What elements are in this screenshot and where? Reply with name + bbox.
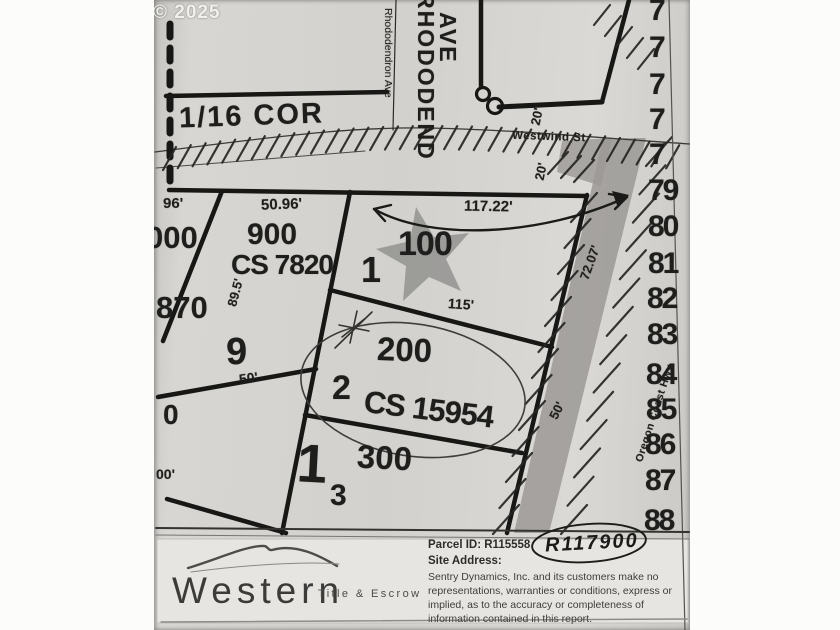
right-number: 7	[649, 105, 664, 135]
right-number: 88	[644, 506, 673, 536]
right-number: 7	[649, 0, 664, 26]
site-address-label: Site Address:	[428, 556, 502, 568]
street-rhododendron-ave-big-2: AVE	[436, 12, 459, 64]
dim-96: 96'	[163, 196, 183, 211]
street-rhododendron-ave-small: Rhododendron Ave	[383, 8, 394, 98]
right-number: 85	[646, 395, 675, 425]
right-number: 7	[649, 33, 664, 63]
right-number: 80	[648, 212, 677, 242]
parcel-0: 0	[163, 401, 179, 429]
corner-label: 1/16 COR	[179, 99, 325, 133]
copyright-watermark: © 2025	[154, 3, 221, 22]
western-title-logo-sub: Title & Escrow	[318, 589, 421, 600]
dim-00: 00'	[156, 467, 175, 481]
right-number: 83	[647, 320, 676, 350]
right-number: 82	[647, 284, 676, 314]
parcel-900-cs: CS 7820	[231, 251, 333, 279]
right-number: 87	[645, 466, 674, 496]
right-number: 79	[648, 176, 677, 206]
street-rhododendron-ave-big: RHODODEND	[414, 0, 437, 161]
scanned-plat-map: © 2025 1/16 COR Rhododendron Ave RHODODE…	[154, 0, 690, 630]
scan-inner: © 2025 1/16 COR Rhododendron Ave RHODODE…	[154, 0, 690, 630]
right-number: 81	[648, 249, 677, 279]
dim-117-22: 117.22'	[464, 199, 513, 215]
parcel-000: 000	[154, 222, 198, 253]
dim-20-south: 20'	[533, 162, 549, 182]
parcel-900: 900	[247, 220, 297, 250]
lot-1b: 1	[296, 436, 329, 491]
lot-9: 9	[226, 333, 247, 371]
parcel-200: 200	[376, 332, 432, 367]
parcel-300: 300	[356, 440, 413, 476]
dim-50-lot9: 50'	[238, 370, 259, 386]
lot-1: 1	[361, 252, 381, 288]
lot-2: 2	[332, 371, 351, 405]
parcel-870: 870	[156, 292, 208, 323]
right-number: 86	[645, 430, 674, 460]
crossed-star-doodle	[335, 311, 372, 348]
right-number: 7	[649, 140, 664, 170]
dim-50-96: 50.96'	[261, 196, 303, 212]
disclaimer-text: Sentry Dynamics, Inc. and its customers …	[428, 571, 678, 626]
dim-115: 115'	[448, 296, 475, 312]
parcel-id-label: Parcel ID: R115558	[428, 540, 530, 552]
dim-20-north: 20'	[529, 107, 545, 127]
handwritten-parcel-annotation: R117900	[545, 531, 640, 556]
page: © 2025 1/16 COR Rhododendron Ave RHODODE…	[0, 0, 840, 630]
lot-3: 3	[330, 481, 347, 511]
right-number: 7	[649, 70, 664, 100]
right-number: 84	[646, 360, 675, 390]
parcel-100: 100	[398, 227, 452, 261]
